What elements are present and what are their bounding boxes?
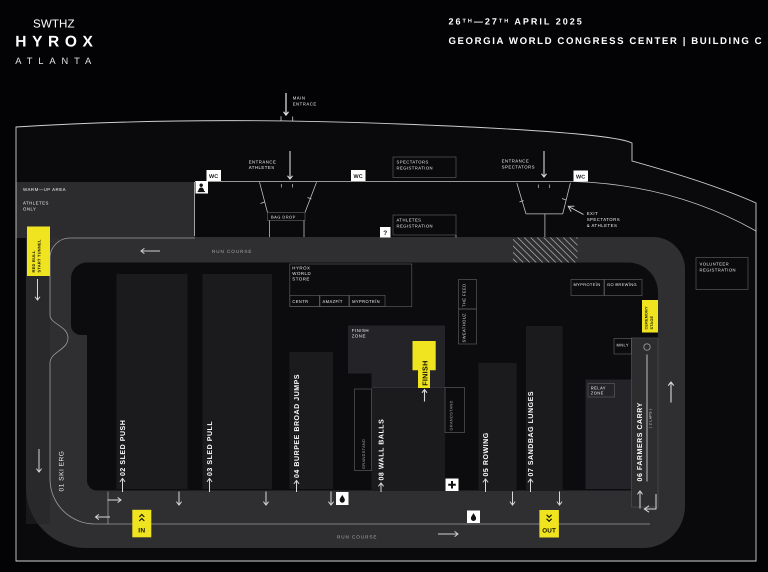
svg-text:HYROX: HYROX (292, 266, 310, 271)
svg-text:GRANDSTAND: GRANDSTAND (449, 400, 453, 430)
svg-text:AMAZFÍT: AMAZFÍT (323, 299, 343, 304)
svg-text:03 SLED PULL: 03 SLED PULL (207, 421, 214, 476)
svg-text:SWEATHOUZ: SWEATHOUZ (461, 313, 466, 343)
svg-text:MAIN: MAIN (293, 96, 306, 101)
svg-text:FINISH: FINISH (420, 360, 429, 385)
svg-text:MNLY: MNLY (617, 343, 629, 348)
svg-text:THE FEED: THE FEED (461, 284, 466, 307)
svg-text:04 BURPEE BROAD JUMPS: 04 BURPEE BROAD JUMPS (294, 374, 301, 478)
svg-text:RELAY: RELAY (591, 385, 606, 390)
svg-text:ZONE: ZONE (352, 334, 366, 339)
svg-text:ONLY: ONLY (23, 206, 36, 211)
svg-text:07 SANDBAG LUNGES: 07 SANDBAG LUNGES (528, 391, 535, 477)
svg-text:EXIT: EXIT (587, 211, 599, 216)
svg-text:RUN COURSE: RUN COURSE (212, 249, 252, 254)
svg-text:SWTHZ: SWTHZ (33, 18, 75, 31)
svg-text:STORE: STORE (292, 276, 310, 281)
svg-text:WC: WC (354, 174, 363, 180)
svg-text:ATHLETES: ATHLETES (249, 165, 275, 170)
svg-text:MYPROTEÏN: MYPROTEÏN (574, 282, 601, 287)
svg-text:WC: WC (209, 174, 218, 180)
svg-text:REGISTRATION: REGISTRATION (397, 223, 434, 228)
svg-text:WARM—UP AREA: WARM—UP AREA (23, 187, 66, 192)
svg-text:WC: WC (576, 175, 585, 181)
svg-text:HYROX: HYROX (15, 34, 98, 51)
svg-text:06 FARMERS CARRY: 06 FARMERS CARRY (637, 402, 644, 481)
svg-text:START TUNNEL: START TUNNEL (37, 239, 42, 272)
svg-text:RED BULL: RED BULL (31, 250, 36, 272)
svg-text:RUN COURSE: RUN COURSE (337, 535, 377, 540)
svg-text:SPECTATORS: SPECTATORS (502, 164, 535, 169)
svg-text:ENTRANCE: ENTRANCE (249, 159, 277, 164)
svg-text:?: ? (383, 230, 387, 237)
svg-text:CENTR: CENTR (292, 299, 308, 304)
svg-text:ENTRANCE: ENTRANCE (502, 159, 530, 164)
svg-text:05 ROWING: 05 ROWING (483, 432, 490, 476)
svg-text:REGISTRATION: REGISTRATION (397, 165, 434, 170)
svg-text:OUT: OUT (542, 527, 556, 534)
svg-text:SPECTATORS: SPECTATORS (587, 217, 620, 222)
svg-text:& ATHLETES: & ATHLETES (587, 223, 618, 228)
svg-text:SPECTATORS: SPECTATORS (397, 160, 429, 165)
svg-text:STAGE: STAGE (650, 316, 654, 330)
svg-text:02 SLED PUSH: 02 SLED PUSH (120, 420, 127, 476)
svg-text:WORLD: WORLD (292, 271, 311, 276)
svg-text:FINISH: FINISH (352, 328, 369, 333)
svg-text:08 WALL BALLS: 08 WALL BALLS (379, 419, 386, 481)
svg-text:ATHLETES: ATHLETES (397, 218, 422, 223)
svg-text:GEORGIA WORLD CONGRESS CENTER: GEORGIA WORLD CONGRESS CENTER | BUILDING… (449, 36, 764, 47)
svg-text:01 SKI ERG: 01 SKI ERG (59, 451, 66, 492)
svg-text:ATLANTA: ATLANTA (15, 56, 97, 66)
svg-text:( 2 LAPS ): ( 2 LAPS ) (649, 408, 653, 428)
svg-text:BAG DROP: BAG DROP (271, 215, 296, 220)
svg-text:ENTRACE: ENTRACE (293, 101, 317, 106)
svg-text:IN: IN (138, 527, 145, 534)
svg-text:VOLUNTEER: VOLUNTEER (700, 262, 730, 267)
svg-text:ATHLETES: ATHLETES (23, 201, 49, 206)
svg-text:REGISTRATION: REGISTRATION (700, 267, 737, 272)
svg-text:MYPROTEÏN: MYPROTEÏN (352, 299, 380, 304)
svg-text:CEREMONY: CEREMONY (645, 306, 649, 330)
svg-text:ZONE: ZONE (591, 391, 604, 396)
svg-text:GO BREWÏNG: GO BREWÏNG (607, 282, 637, 287)
svg-text:GRANDSTAND: GRANDSTAND (362, 439, 366, 469)
